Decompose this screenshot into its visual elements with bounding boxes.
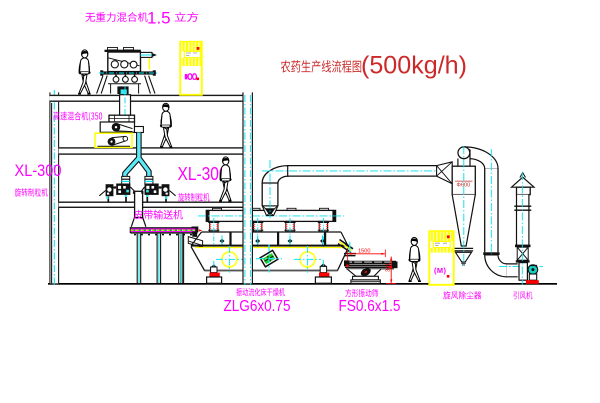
svg-text:FS0.6x1.5: FS0.6x1.5 [339, 298, 401, 315]
svg-text:(M): (M) [434, 266, 447, 275]
svg-text:ZLG6x0.75: ZLG6x0.75 [224, 298, 291, 315]
svg-text:1500: 1500 [358, 249, 370, 255]
svg-text:(500kg/h): (500kg/h) [361, 52, 467, 80]
svg-text:1.5: 1.5 [147, 9, 171, 28]
svg-text:341: 341 [386, 263, 392, 272]
svg-text:XL-300: XL-300 [15, 162, 62, 180]
